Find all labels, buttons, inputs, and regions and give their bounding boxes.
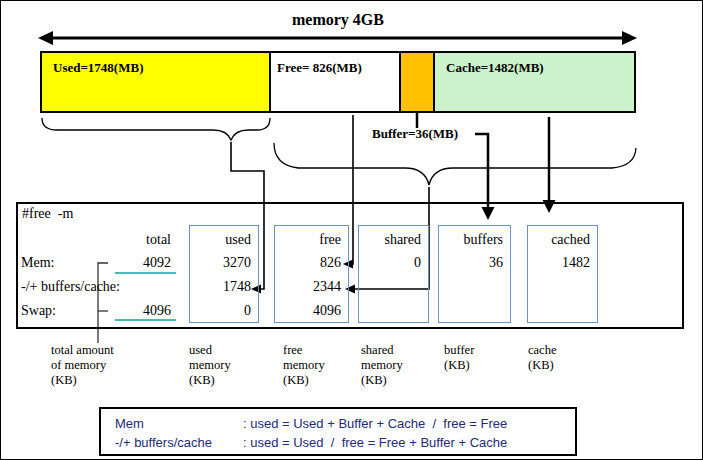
free-command: #free -m [22, 206, 73, 222]
legend-used-line1: used [189, 343, 231, 358]
bar-segment-free: Free= 826(MB) [271, 51, 401, 113]
bar-segment-buffer [401, 51, 435, 113]
free-buffer-cache-brace [274, 143, 636, 185]
bc-free: 2344 [271, 278, 341, 295]
mem-buffers: 36 [433, 254, 503, 271]
legend-used: used memory (KB) [189, 343, 231, 388]
legend-total-line1: total amount [51, 343, 114, 358]
legend-used-line2: memory [189, 358, 231, 373]
bar-segment-cache: Cache=1482(MB) [435, 51, 636, 113]
legend-buffer-line1: buffer [444, 343, 474, 358]
mem-free: 826 [271, 254, 341, 271]
col-header-free: free [271, 231, 341, 248]
bar-segment-used: Used=1748(MB) [40, 51, 271, 113]
legend-cache-line2: (KB) [528, 358, 556, 373]
formula-row-mem: Mem : used = Used + Buffer + Cache / fre… [115, 414, 575, 433]
formula-box: Mem : used = Used + Buffer + Cache / fre… [99, 407, 577, 456]
diagram-title: memory 4GB [238, 11, 438, 29]
legend-buffer: buffer (KB) [444, 343, 474, 373]
mem-shared: 0 [351, 254, 421, 271]
legend-shared-line3: (KB) [361, 373, 403, 388]
memory-diagram-page: memory 4GB Used=1748(MB) Free= 826(MB) C… [0, 0, 703, 460]
formula-bc-rule: : used = Used / free = Free + Buffer + C… [243, 433, 507, 452]
legend-total: total amount of memory (KB) [51, 343, 114, 388]
col-header-total: total [101, 231, 171, 248]
row-label-swap: Swap: [21, 302, 56, 319]
row-label-mem: Mem: [21, 254, 54, 271]
cache-down-arrow [543, 117, 556, 213]
memory-span-arrow [38, 31, 637, 45]
col-header-used: used [181, 231, 251, 248]
legend-used-line3: (KB) [189, 373, 231, 388]
legend-free: free memory (KB) [283, 343, 325, 388]
mem-cached: 1482 [520, 254, 590, 271]
bc-used: 1748 [181, 278, 251, 295]
legend-total-line3: (KB) [51, 373, 114, 388]
memory-bar: Used=1748(MB) Free= 826(MB) Cache=1482(M… [40, 51, 636, 113]
mem-used: 3270 [181, 254, 251, 271]
swap-total: 4096 [101, 302, 171, 319]
buffer-segment-label: Buffer=36(MB) [372, 126, 458, 142]
legend-total-line2: of memory [51, 358, 114, 373]
legend-buffer-line2: (KB) [444, 358, 474, 373]
cache-segment-label: Cache=1482(MB) [446, 60, 634, 76]
formula-mem-rule: : used = Used + Buffer + Cache / free = … [243, 414, 507, 433]
mem-total: 4092 [101, 254, 171, 271]
formula-bc-name: -/+ buffers/cache [115, 433, 243, 452]
swap-used: 0 [181, 302, 251, 319]
free-segment-label: Free= 826(MB) [277, 60, 399, 76]
col-header-cached: cached [520, 231, 590, 248]
legend-cache-line1: cache [528, 343, 556, 358]
legend-cache: cache (KB) [528, 343, 556, 373]
swap-free: 4096 [271, 302, 341, 319]
col-header-shared: shared [351, 231, 421, 248]
col-header-buffers: buffers [433, 231, 503, 248]
row-label-buffers-cache: -/+ buffers/cache: [21, 278, 120, 295]
legend-shared-line2: memory [361, 358, 403, 373]
used-brace [42, 118, 270, 140]
formula-mem-name: Mem [115, 414, 243, 433]
legend-free-line3: (KB) [283, 373, 325, 388]
legend-shared: shared memory (KB) [361, 343, 403, 388]
used-segment-label: Used=1748(MB) [53, 60, 269, 76]
legend-free-line2: memory [283, 358, 325, 373]
legend-free-line1: free [283, 343, 325, 358]
legend-shared-line1: shared [361, 343, 403, 358]
formula-row-buffers-cache: -/+ buffers/cache : used = Used / free =… [115, 433, 575, 452]
